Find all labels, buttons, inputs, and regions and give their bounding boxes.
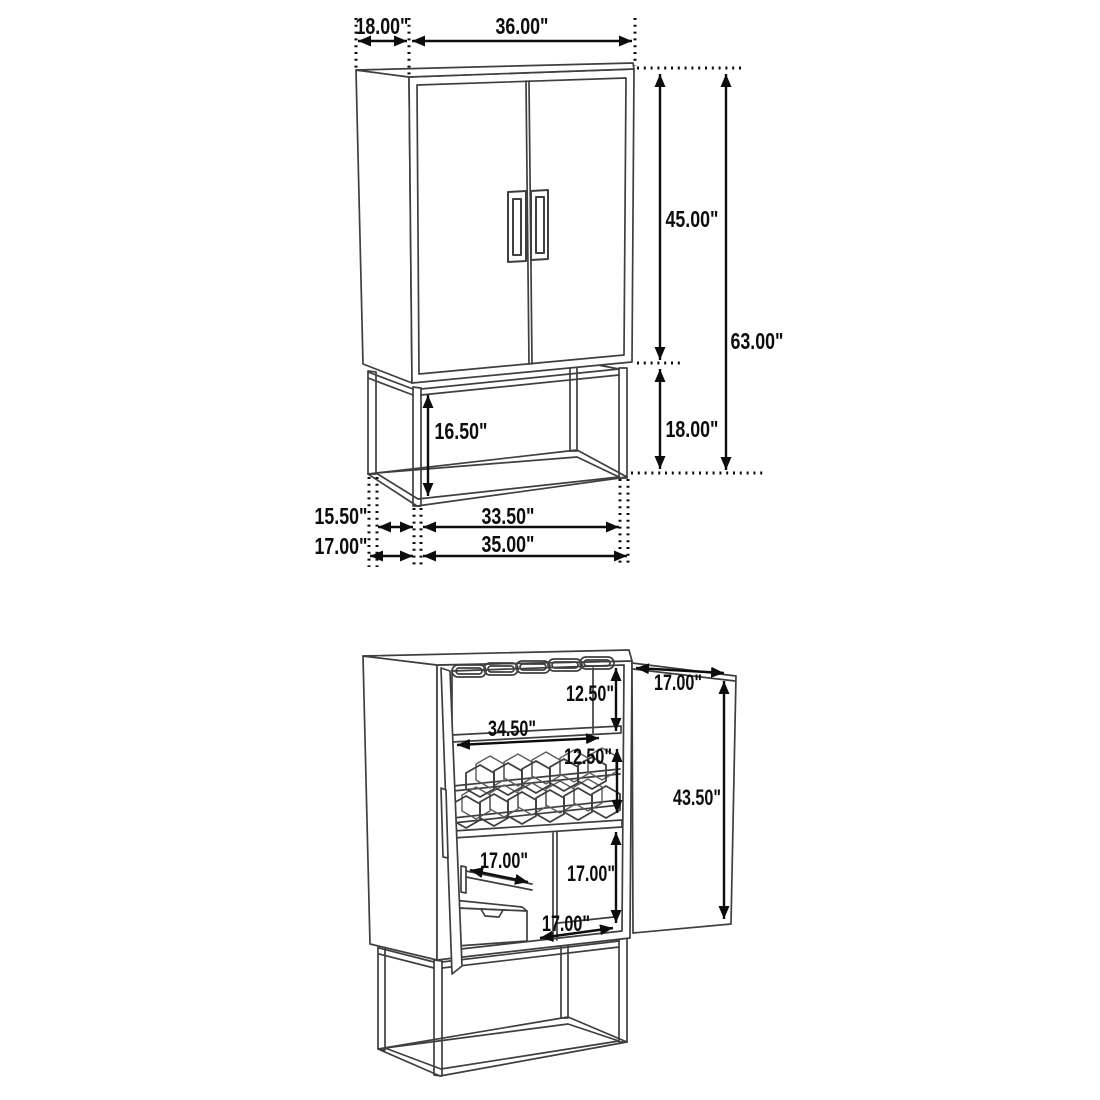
dimension-diagram-svg: 18.00" 36.00" 45.00" 63.00" 18.00" 16.50… [0, 0, 1100, 1100]
open-cabinet-view: 12.50" 34.50" 12.50" 17.00" 17.00" 17.00… [363, 650, 736, 1076]
dim-label-lower-height: 17.00" [567, 861, 615, 886]
base-leg-back-left [368, 371, 376, 474]
dim-label-shelf-width: 34.50" [488, 716, 536, 741]
extension-lines-right [631, 68, 763, 473]
dim-label-base-inner-height: 16.50" [435, 418, 488, 444]
base-leg-front-right [619, 938, 627, 1042]
base-leg-front-left [413, 387, 421, 506]
base-leg-front-right [619, 368, 627, 478]
base-bottom-frame-outer [378, 1017, 627, 1076]
dim-label-stemware-height: 12.50" [566, 681, 614, 706]
dim-label-overall-height: 63.00" [731, 328, 784, 354]
base-bottom-frame-outer [368, 450, 627, 506]
closed-cabinet-view: 18.00" 36.00" 45.00" 63.00" 18.00" 16.50… [315, 13, 784, 567]
dim-label-base-outer-width: 35.00" [482, 531, 535, 557]
dim-label-base-height: 18.00" [666, 416, 719, 442]
base-bottom-frame-inner [385, 1024, 619, 1069]
dim-label-cabinet-height: 45.00" [666, 206, 719, 232]
dim-label-top-depth: 18.00" [356, 13, 409, 39]
dim-label-base-inner-width: 33.50" [482, 503, 535, 529]
dim-label-door-width: 17.00" [654, 670, 702, 695]
cabinet-left-side [363, 656, 437, 960]
dim-label-door-height: 43.50" [673, 785, 721, 810]
dim-label-base-outer-depth: 17.00" [315, 533, 368, 559]
left-door-handle [441, 788, 448, 858]
diagram-canvas: 18.00" 36.00" 45.00" 63.00" 18.00" 16.50… [0, 0, 1100, 1100]
pullout-tray-tab [461, 866, 466, 893]
cabinet-left-side [356, 70, 412, 383]
base-leg-front-left [434, 960, 442, 1076]
drawer-front [457, 908, 527, 946]
dim-label-winerack-height: 12.50" [564, 744, 612, 769]
base-leg-back-left [378, 946, 385, 1050]
dim-label-lower-width: 17.00" [542, 911, 590, 936]
cabinet-body-closed [356, 63, 634, 383]
dim-label-top-width: 36.00" [496, 13, 549, 39]
dim-label-base-inner-depth: 15.50" [315, 503, 368, 529]
dim-label-drawer-depth: 17.00" [480, 848, 528, 873]
